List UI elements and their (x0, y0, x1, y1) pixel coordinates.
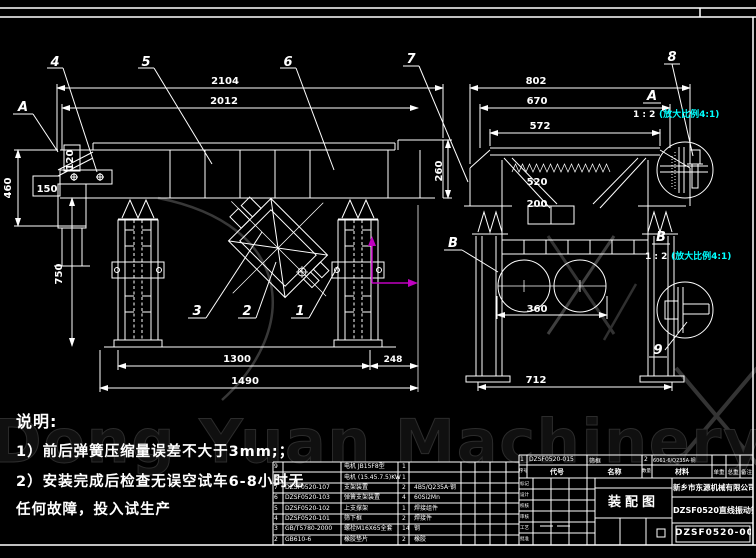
tb-header-total-weight: 总重 (726, 468, 740, 476)
bom-row: 3 GB/T5780-2000 螺栓M16X65全套 14 钢 (273, 524, 519, 534)
bom-code: DZSF0520-101 (284, 514, 343, 524)
dim-750: 750 (54, 264, 65, 285)
tb-header-no: 序号 (519, 468, 527, 474)
dim-260: 260 (434, 161, 445, 182)
bom-no: 9 (273, 462, 284, 472)
bom-name: 上支撑架 (343, 504, 401, 514)
bom-row: 8 电机 (15.45.7.5)KW 1 (273, 472, 519, 482)
detail-a-scale-note: (放大比例4:1) (659, 108, 719, 120)
bom-row: 2 GB610-6 橡胶垫片 2 橡胶 (273, 535, 519, 545)
bom-row: 6 DZSF0520-103 弹簧支架装置 4 60Si2Mn (273, 493, 519, 503)
dim-1300: 1300 (223, 354, 251, 365)
bom-material: 钢 (413, 524, 466, 534)
tb-row1-code: DZSF0520-015 (529, 456, 586, 463)
bom-row: 5 DZSF0520-102 上支撑架 1 焊接组件 (273, 504, 519, 514)
bom-table: 9 电机 JB15F8型 1 8 电机 (15.45.7.5)KW 1 7 DZ… (273, 462, 519, 545)
bom-row: 7 DZSF0520-107 支架装置 2 4B5/Q235A·钢 (273, 483, 519, 493)
tb-row1-no: 1 (520, 456, 527, 463)
detail-a-linework (643, 64, 713, 198)
tb-header-code: 代号 (527, 467, 587, 477)
dim-200: 200 (527, 199, 548, 210)
tb-product: DZSF0520直线振动筛 (673, 499, 753, 522)
tb-left-label-5: 批准 (520, 536, 533, 542)
balloon-4: 4 (49, 55, 59, 70)
dim-2012: 2012 (210, 96, 238, 107)
tb-row1-material: 6061·6/Q235A·钢 (653, 457, 712, 464)
tb-left-label-0: 标记 (520, 481, 533, 487)
balloon-5: 5 (141, 55, 150, 70)
balloon-9: 9 (653, 343, 662, 358)
bom-material: 焊接组件 (413, 504, 466, 514)
tb-header-name: 名称 (587, 467, 642, 477)
section-marker-b: B (448, 236, 458, 251)
bom-no: 5 (273, 504, 284, 514)
tb-header-material: 材料 (652, 467, 712, 477)
cad-drawing-canvas: Dong Yuan Machinery (0, 0, 756, 558)
bom-qty: 1 (401, 462, 413, 472)
detail-b-scale: 1 : 2 (645, 252, 667, 262)
dim-520: 520 (527, 177, 548, 188)
dim-712: 712 (526, 375, 547, 386)
bom-code: GB610-6 (284, 535, 343, 545)
bom-qty: 1 (401, 473, 413, 483)
tb-drawing-no: DZSF0520-000 (675, 524, 751, 543)
tb-row1-qty: 2 (644, 456, 651, 463)
dim-460: 460 (3, 178, 14, 199)
dim-572: 572 (530, 121, 551, 132)
bom-no: 8 (273, 473, 284, 483)
balloon-6: 6 (283, 55, 292, 70)
detail-b-label: B (656, 230, 666, 245)
notes-line-2: 2）安装完成后检查无误空试车6-8小时无 (16, 470, 304, 491)
tb-left-label-1: 设计 (520, 492, 533, 498)
dim-360: 360 (527, 304, 548, 315)
tb-company: 新乡市东源机械有限公司 (673, 480, 753, 496)
detail-b-scale-note: (放大比例4:1) (671, 250, 731, 262)
side-view-linework (13, 68, 452, 392)
bom-no: 4 (273, 514, 284, 524)
dim-150: 150 (37, 184, 58, 195)
tb-left-label-2: 校核 (520, 503, 533, 509)
bom-name: 弹簧支架装置 (343, 493, 401, 503)
bom-code: DZSF0520-107 (284, 483, 343, 493)
bom-name: 电机 (15.45.7.5)KW (343, 473, 401, 483)
tb-doc-type: 装配图 (595, 488, 672, 518)
balloon-8: 8 (667, 50, 676, 65)
tb-header-unit-weight: 单重 (712, 468, 726, 476)
detail-a-label: A (646, 89, 657, 104)
dim-670: 670 (527, 96, 548, 107)
notes-title: 说明: (16, 408, 57, 432)
bom-name: 筛下框 (343, 514, 401, 524)
bom-qty: 4 (401, 493, 413, 503)
balloon-7: 7 (406, 52, 416, 67)
notes-line-1: 1）前后弹簧压缩量误差不大于3mm;； (16, 440, 294, 461)
bom-name: 支架装置 (343, 483, 401, 493)
tb-left-label-4: 工艺 (520, 525, 533, 531)
bom-name: 螺栓M16X65全套 (343, 524, 401, 534)
dim-120: 120 (65, 150, 76, 171)
bom-qty: 2 (401, 535, 413, 545)
tb-header-remark: 备注 (740, 468, 753, 476)
bom-name: 橡胶垫片 (343, 535, 401, 545)
tb-row1-name: 筛框 (589, 456, 641, 465)
bom-row: 4 DZSF0520-101 筛下框 2 焊接件 (273, 514, 519, 524)
balloon-2: 2 (242, 304, 251, 319)
notes-line-3: 任何故障，投入试生产 (16, 498, 171, 519)
bom-qty: 2 (401, 483, 413, 493)
bom-no: 6 (273, 493, 284, 503)
dim-2104: 2104 (211, 76, 239, 87)
section-marker-a: A (17, 100, 28, 115)
bom-qty: 14 (401, 524, 413, 534)
bom-code: GB/T5780-2000 (284, 524, 343, 534)
bom-material: 橡胶 (413, 535, 466, 545)
bom-material: 焊接件 (413, 514, 466, 524)
bom-material: 4B5/Q235A·钢 (413, 483, 466, 493)
bom-qty: 2 (401, 514, 413, 524)
bom-code: DZSF0520-102 (284, 504, 343, 514)
tb-header-qty: 数量 (642, 468, 652, 474)
detail-a-scale: 1 : 2 (633, 110, 655, 120)
bom-no: 2 (273, 535, 284, 545)
bom-row: 9 电机 JB15F8型 1 (273, 462, 519, 472)
bom-qty: 1 (401, 504, 413, 514)
bom-no: 7 (273, 483, 284, 493)
balloon-1: 1 (295, 304, 304, 319)
bom-code: DZSF0520-103 (284, 493, 343, 503)
dim-248: 248 (384, 355, 403, 365)
dim-802: 802 (526, 76, 547, 87)
bom-no: 3 (273, 524, 284, 534)
dim-1490: 1490 (231, 376, 259, 387)
bom-name: 电机 JB15F8型 (343, 462, 401, 472)
bom-material: 60Si2Mn (413, 493, 466, 503)
tb-left-label-3: 审核 (520, 514, 533, 520)
balloon-3: 3 (192, 304, 201, 319)
